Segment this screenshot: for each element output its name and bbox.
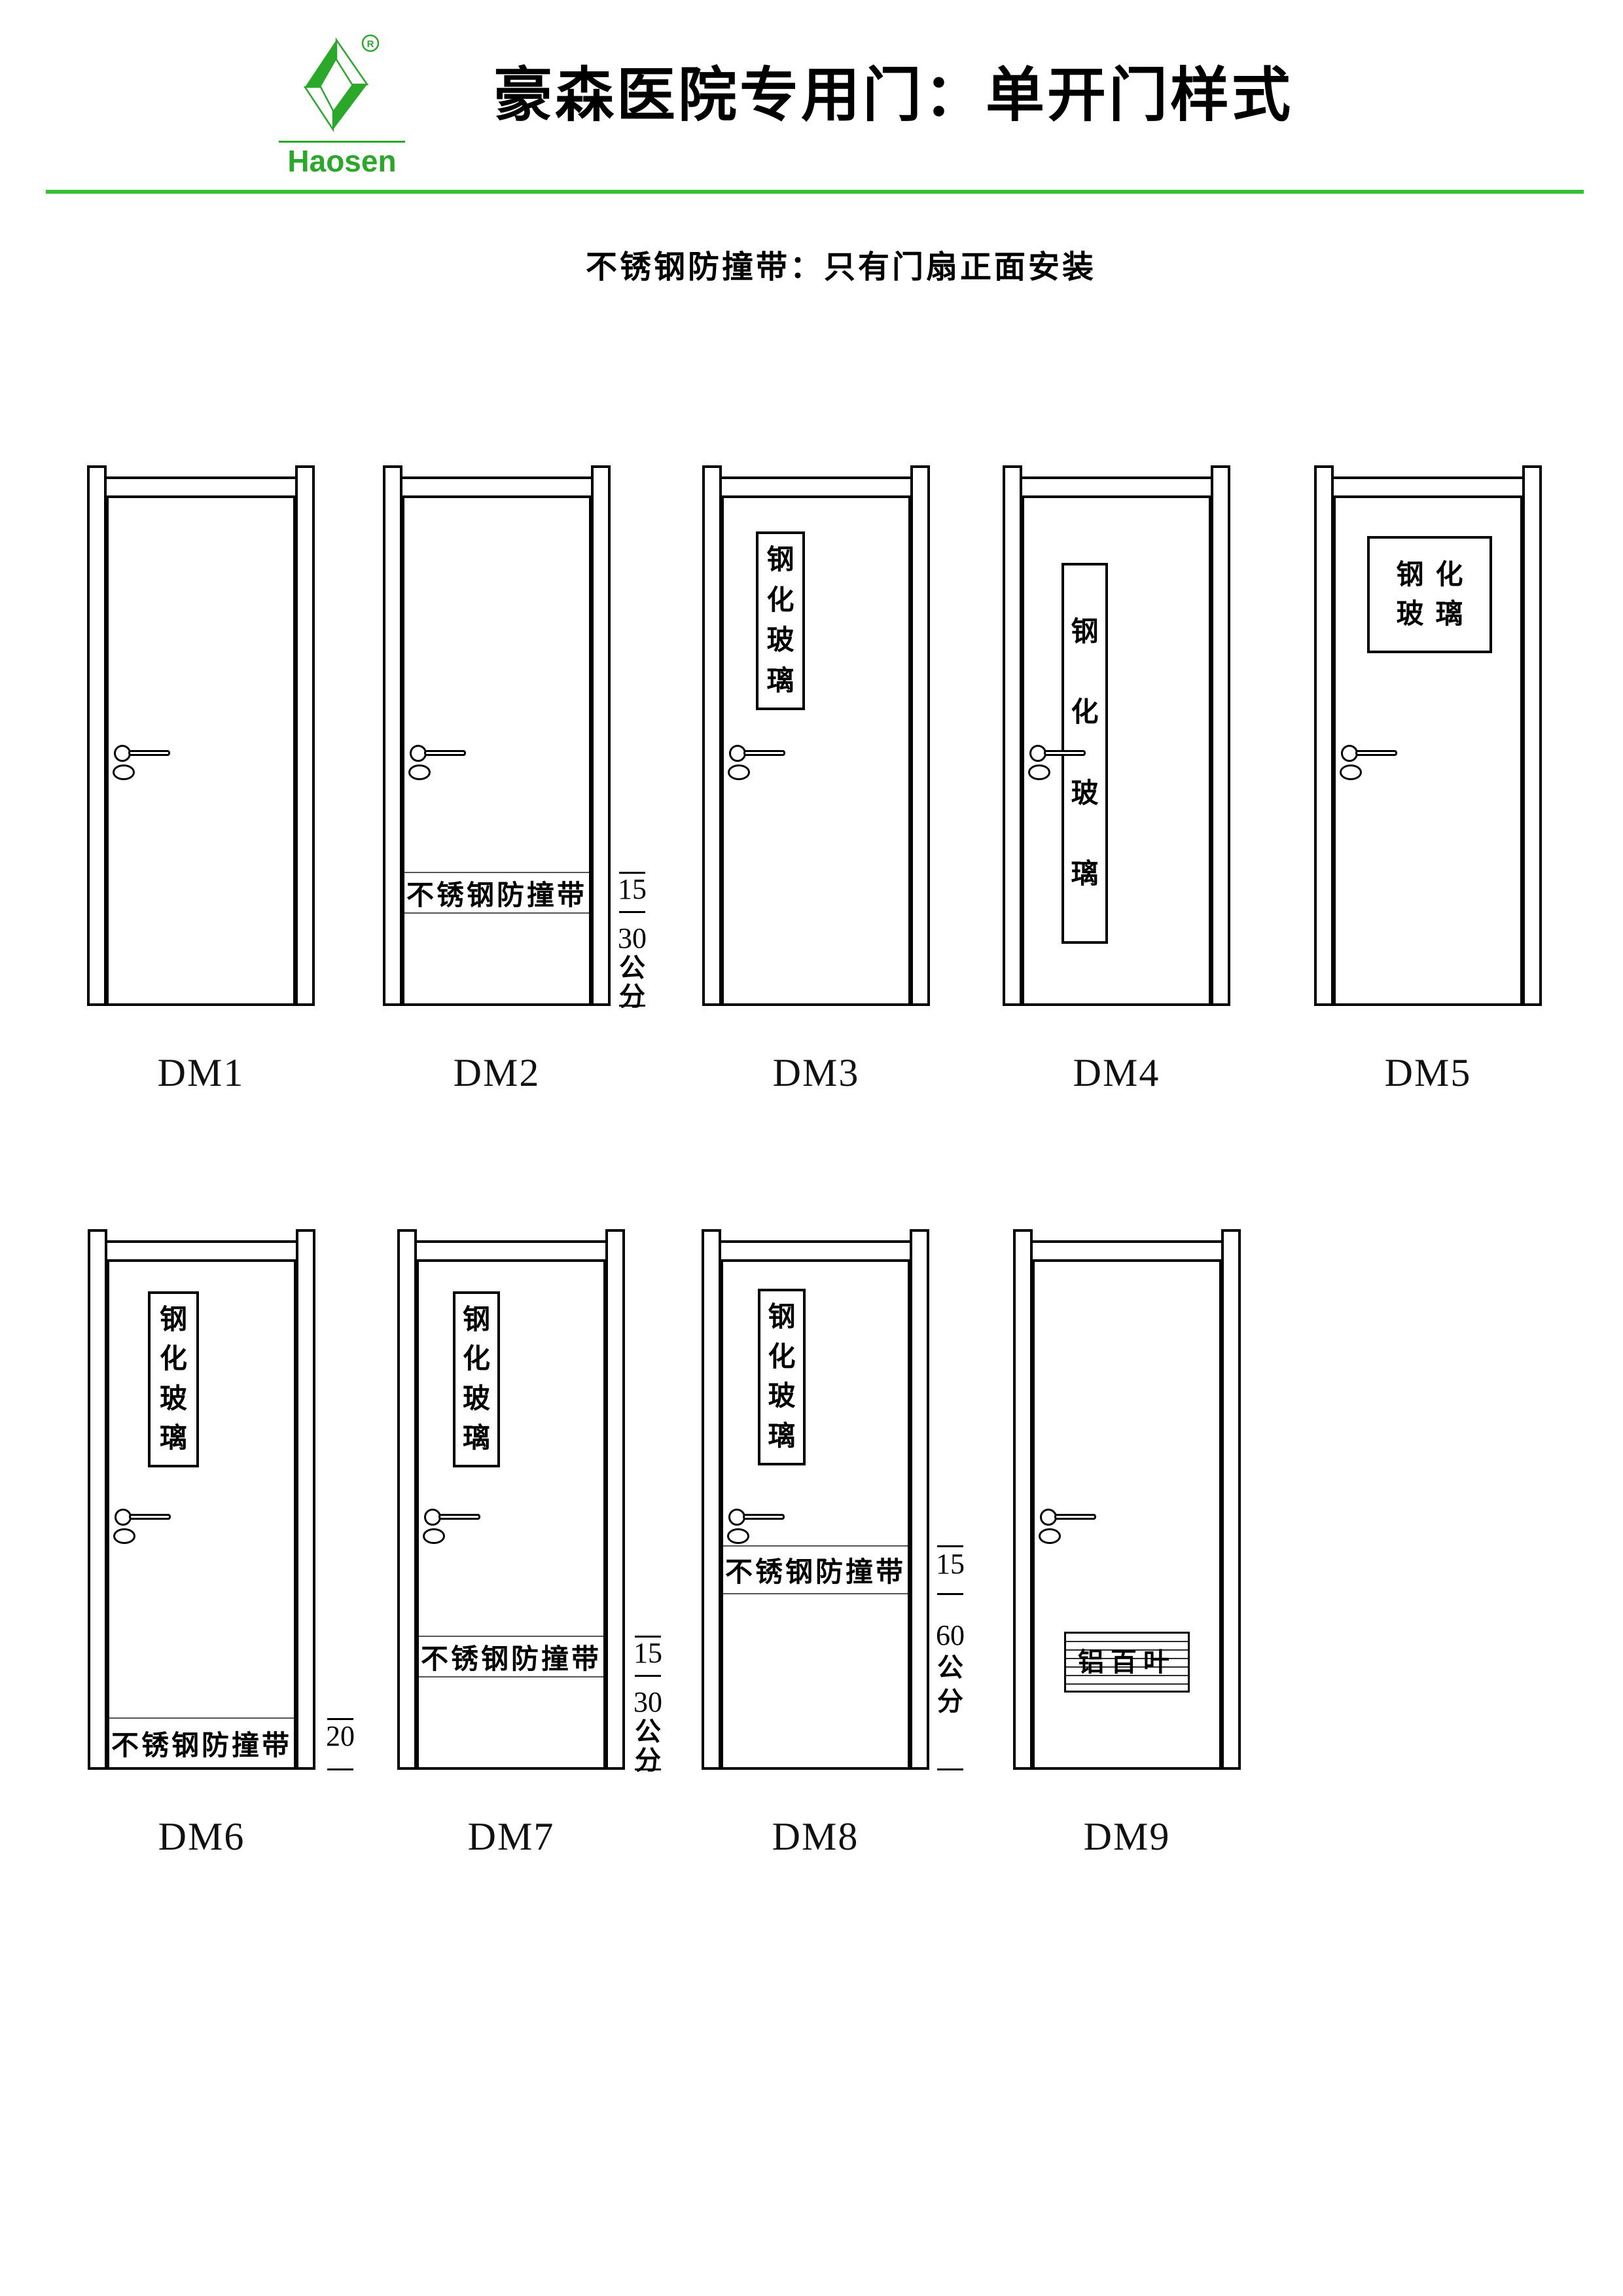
door-frame-post-left xyxy=(702,465,722,1006)
door-leaf xyxy=(106,495,296,1006)
dim-unit-char: 分 xyxy=(627,1746,669,1775)
door-label: DM3 xyxy=(702,1053,930,1092)
door-handle xyxy=(109,498,293,1003)
dim-unit-char: 公 xyxy=(611,954,653,982)
lock-plate-icon xyxy=(1039,1528,1061,1544)
door-label: DM2 xyxy=(383,1053,611,1092)
louver-vent: 铝百叶 xyxy=(1064,1632,1190,1693)
door-frame-lintel xyxy=(106,476,296,479)
door-label: DM8 xyxy=(702,1817,929,1856)
dim-unit-char: 公 xyxy=(627,1717,669,1746)
handle-lever-icon xyxy=(438,1514,480,1520)
dim-value-upper: 15 xyxy=(627,1637,669,1670)
green-divider xyxy=(46,190,1584,194)
handle-lever-icon xyxy=(129,1514,171,1520)
door-dm7: 钢 化 玻 璃 不锈钢防撞带 15 30 公 分 DM7 xyxy=(397,1229,625,1770)
bumper-strip: 不锈钢防撞带 xyxy=(109,1717,294,1767)
door-frame-post-right xyxy=(1211,465,1230,1006)
lock-plate-icon xyxy=(113,764,135,780)
door-leaf: 钢 化 玻 璃 xyxy=(721,495,911,1006)
door-frame-lintel xyxy=(721,1240,910,1243)
door-frame-post-right xyxy=(605,1229,625,1770)
door-label: DM7 xyxy=(397,1817,625,1856)
door-frame-lintel xyxy=(416,1240,606,1243)
dim-unit-char: 公 xyxy=(929,1653,971,1682)
dim-unit-char: 分 xyxy=(611,982,653,1011)
door-dm2: 不锈钢防撞带 15 30 公 分 DM2 xyxy=(383,465,611,1006)
handle-lever-icon xyxy=(1355,750,1397,756)
door-dm8: 钢 化 玻 璃 不锈钢防撞带 15 60 公 分 DM8 xyxy=(702,1229,929,1770)
catalog-page: R Haosen 豪森医院专用门：单开门样式 不锈钢防撞带：只有门扇正面安装 D… xyxy=(0,0,1623,2296)
door-leaf: 铝百叶 xyxy=(1032,1259,1222,1770)
door-frame-lintel xyxy=(1022,476,1211,479)
door-frame-post-left xyxy=(1003,465,1022,1006)
handle-lever-icon xyxy=(743,750,785,756)
lock-plate-icon xyxy=(408,764,431,780)
door-leaf: 钢化 玻璃 xyxy=(1333,495,1523,1006)
dim-tick xyxy=(327,1768,353,1770)
lock-plate-icon xyxy=(727,1528,749,1544)
door-label: DM6 xyxy=(88,1817,315,1856)
door-leaf: 钢 化 玻 璃 不锈钢防撞带 xyxy=(107,1259,296,1770)
bumper-strip: 不锈钢防撞带 xyxy=(404,872,589,914)
door-frame-post-left xyxy=(383,465,402,1006)
door-dm4: 钢 化 玻 璃 DM4 xyxy=(1003,465,1230,1006)
door-frame-lintel xyxy=(402,476,592,479)
bumper-strip-label: 不锈钢防撞带 xyxy=(725,1550,906,1590)
bumper-strip-label: 不锈钢防撞带 xyxy=(406,873,587,913)
handle-lever-icon xyxy=(743,1514,785,1520)
door-leaf: 钢 化 玻 璃 xyxy=(1022,495,1211,1006)
door-frame-lintel xyxy=(721,476,911,479)
logo-wordmark: Haosen xyxy=(279,146,405,176)
door-dm5: 钢化 玻璃 DM5 xyxy=(1314,465,1542,1006)
dim-tick xyxy=(635,1768,661,1770)
handle-lever-icon xyxy=(1054,1514,1096,1520)
door-frame-lintel xyxy=(1333,476,1523,479)
dim-value-lower: 60 xyxy=(929,1619,971,1652)
registered-trademark-letter: R xyxy=(367,39,374,50)
door-frame-post-left xyxy=(1314,465,1334,1006)
door-frame-post-right xyxy=(296,1229,315,1770)
dim-value-upper: 15 xyxy=(611,873,653,906)
door-handle xyxy=(1024,498,1209,1003)
page-title: 豪森医院专用门：单开门样式 xyxy=(452,63,1335,128)
door-label: DM9 xyxy=(1013,1817,1241,1856)
door-frame-post-right xyxy=(591,465,611,1006)
door-dm9: 铝百叶 DM9 xyxy=(1013,1229,1241,1770)
handle-lever-icon xyxy=(128,750,170,756)
door-frame-post-left xyxy=(1013,1229,1033,1770)
bumper-strip: 不锈钢防撞带 xyxy=(419,1636,603,1677)
dim-tick xyxy=(937,1768,963,1770)
door-leaf: 钢 化 玻 璃 不锈钢防撞带 xyxy=(416,1259,606,1770)
door-frame-post-left xyxy=(87,465,107,1006)
handle-lever-icon xyxy=(1044,750,1086,756)
dim-value-upper: 20 xyxy=(319,1720,361,1753)
door-frame-post-right xyxy=(910,465,930,1006)
haosen-diamond-icon: R xyxy=(297,32,385,137)
lock-plate-icon xyxy=(728,764,750,780)
door-handle xyxy=(404,498,589,1003)
door-leaf: 钢 化 玻 璃 不锈钢防撞带 xyxy=(721,1259,910,1770)
dim-value-lower: 30 xyxy=(611,922,653,955)
bumper-strip: 不锈钢防撞带 xyxy=(723,1545,908,1594)
door-label: DM1 xyxy=(87,1053,315,1092)
door-frame-lintel xyxy=(107,1240,296,1243)
door-frame-post-right xyxy=(295,465,315,1006)
lock-plate-icon xyxy=(1340,764,1362,780)
dim-tick xyxy=(635,1675,661,1677)
lock-plate-icon xyxy=(1028,764,1050,780)
bumper-strip-label: 不锈钢防撞带 xyxy=(111,1723,292,1763)
door-dm1: DM1 xyxy=(87,465,315,1006)
dim-value-upper: 15 xyxy=(929,1548,971,1581)
door-label: DM4 xyxy=(1003,1053,1230,1092)
haosen-logo: R Haosen xyxy=(279,29,406,183)
door-frame-post-left xyxy=(397,1229,417,1770)
door-handle xyxy=(419,1262,603,1767)
door-handle xyxy=(724,498,908,1003)
page-subtitle: 不锈钢防撞带：只有门扇正面安装 xyxy=(59,241,1623,287)
handle-lever-icon xyxy=(424,750,466,756)
door-frame-post-left xyxy=(702,1229,721,1770)
dim-value-lower: 30 xyxy=(627,1686,669,1719)
door-frame-post-left xyxy=(88,1229,107,1770)
lock-plate-icon xyxy=(423,1528,445,1544)
door-dm6: 钢 化 玻 璃 不锈钢防撞带 20 DM6 xyxy=(88,1229,315,1770)
dim-tick xyxy=(619,911,645,913)
door-frame-post-right xyxy=(910,1229,929,1770)
door-frame-lintel xyxy=(1032,1240,1222,1243)
dim-tick xyxy=(619,1005,645,1007)
door-handle xyxy=(109,1262,294,1767)
louver-label: 铝百叶 xyxy=(1078,1649,1176,1676)
door-dm3: 钢 化 玻 璃 DM3 xyxy=(702,465,930,1006)
bumper-strip-label: 不锈钢防撞带 xyxy=(421,1637,601,1677)
lock-plate-icon xyxy=(113,1528,135,1544)
door-frame-post-right xyxy=(1522,465,1542,1006)
door-leaf: 不锈钢防撞带 xyxy=(402,495,592,1006)
dim-unit-char: 分 xyxy=(929,1687,971,1716)
door-frame-post-right xyxy=(1221,1229,1241,1770)
dim-tick xyxy=(937,1545,963,1547)
logo-underline xyxy=(279,141,405,143)
door-handle xyxy=(1336,498,1520,1003)
dim-tick xyxy=(937,1593,963,1595)
door-handle xyxy=(723,1262,908,1767)
door-label: DM5 xyxy=(1314,1053,1542,1092)
